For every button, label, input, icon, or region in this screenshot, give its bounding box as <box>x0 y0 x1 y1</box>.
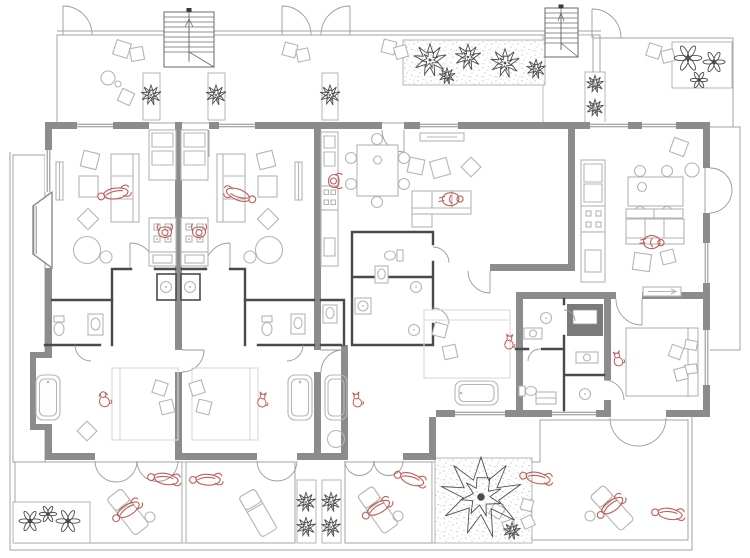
coffee-table <box>660 249 676 265</box>
side-table <box>258 176 277 197</box>
round-table <box>256 237 283 264</box>
interior-door <box>75 345 91 361</box>
kitchen-counter <box>321 210 338 266</box>
sink <box>375 266 388 283</box>
dining-table <box>628 177 683 206</box>
shower-drain <box>580 389 591 400</box>
cushion <box>442 344 457 359</box>
terrace-divider <box>182 462 186 543</box>
armchair <box>257 208 278 229</box>
bathtub <box>455 381 498 405</box>
coffee-table <box>632 252 651 271</box>
toilet <box>54 316 64 336</box>
cat <box>352 391 364 407</box>
armchair <box>669 137 688 156</box>
dog <box>98 391 113 408</box>
deck-chair <box>394 45 409 60</box>
french-door <box>710 168 732 213</box>
terraces <box>13 35 740 543</box>
round-table <box>685 163 699 177</box>
sink <box>576 352 598 363</box>
deck-chair <box>129 46 144 61</box>
side-table <box>585 511 595 521</box>
toilet <box>262 316 272 336</box>
french-door <box>95 461 137 482</box>
toilet <box>385 250 404 261</box>
sofa <box>626 219 684 244</box>
window <box>703 330 710 385</box>
deck-chair <box>661 49 676 64</box>
armchair <box>429 157 450 178</box>
toilet <box>519 386 537 396</box>
staircase-left <box>164 8 214 67</box>
deck-chair <box>296 48 310 62</box>
washing-machine <box>355 298 371 314</box>
person-lying <box>651 507 685 520</box>
window <box>455 410 505 417</box>
bathtub <box>288 375 312 420</box>
cushion <box>196 399 212 415</box>
interior-door <box>616 299 642 325</box>
french-door <box>374 461 403 476</box>
shower-drain <box>409 325 420 336</box>
floor-plan-drawing <box>0 0 750 558</box>
armchair <box>77 421 97 441</box>
interior-door <box>321 350 343 372</box>
cat <box>612 350 625 367</box>
vegetation-layer <box>19 44 725 540</box>
person-lying <box>189 473 223 487</box>
window <box>703 243 710 283</box>
bed <box>424 310 510 378</box>
armchair <box>80 150 99 169</box>
interior-door <box>287 345 303 361</box>
interior-door <box>205 243 230 268</box>
stove <box>181 218 208 252</box>
shower-drain <box>411 282 422 293</box>
stove <box>581 206 605 232</box>
window <box>642 122 676 129</box>
armchair <box>256 150 275 169</box>
window <box>77 122 113 129</box>
cushion <box>189 380 205 396</box>
cat <box>257 392 269 408</box>
staircase-right <box>545 5 578 58</box>
cushion <box>674 367 689 382</box>
bench <box>536 392 556 404</box>
side-table <box>79 176 98 197</box>
bed <box>626 328 698 396</box>
window <box>45 150 52 192</box>
planter-strip <box>322 480 341 543</box>
tv-console <box>643 287 681 296</box>
side-table <box>393 511 403 521</box>
sink <box>88 314 103 335</box>
window <box>219 122 255 129</box>
french-door <box>257 461 297 481</box>
deck-chair <box>520 498 533 511</box>
sun-lounger <box>107 488 150 535</box>
deck-chair <box>117 88 134 105</box>
kitchen-sink <box>181 252 208 266</box>
deck-chair <box>646 43 662 59</box>
sun-lounger <box>357 486 398 534</box>
interior-door <box>528 349 540 361</box>
gate-door <box>592 9 621 38</box>
cushion <box>159 399 175 415</box>
sun-lounger <box>239 489 278 538</box>
sideboard <box>626 209 683 218</box>
armchair <box>461 157 481 177</box>
round-stool <box>100 251 112 263</box>
floor-plan <box>0 0 750 558</box>
kitchen-sink <box>149 252 176 266</box>
round-stool <box>244 251 256 263</box>
stove <box>321 186 338 210</box>
interior-door <box>468 271 490 293</box>
cushion <box>152 380 168 396</box>
sun-lounger <box>590 485 634 531</box>
interior-door <box>433 247 449 263</box>
interior-door <box>182 350 204 372</box>
kitchen-tall-unit <box>581 160 605 206</box>
media-unit <box>56 162 63 200</box>
window <box>552 410 596 417</box>
cushion <box>432 322 448 338</box>
window <box>420 122 458 129</box>
sink <box>291 314 305 334</box>
bathtub <box>325 375 347 420</box>
plant-pot <box>115 81 121 87</box>
tv-console <box>420 133 464 141</box>
interior-door <box>604 380 624 400</box>
sink <box>323 305 337 323</box>
media-unit <box>295 162 302 200</box>
shower-drain <box>541 313 552 324</box>
deck-chair <box>113 40 132 59</box>
armchair <box>77 208 98 229</box>
person-lying <box>147 472 181 486</box>
kitchen-tall-unit <box>149 130 176 180</box>
pillow <box>684 340 697 351</box>
side-table <box>145 512 155 522</box>
planter-strip <box>297 480 316 543</box>
sink <box>524 328 542 339</box>
plant-pot <box>101 71 115 85</box>
kitchen-tall-unit <box>181 130 208 180</box>
french-door <box>345 461 374 476</box>
dining-table <box>357 145 398 196</box>
terrace-deck-right-strip <box>705 127 740 350</box>
window <box>590 122 628 129</box>
round-table <box>74 237 101 264</box>
kitchen-counter <box>581 232 605 282</box>
french-door <box>610 418 666 446</box>
